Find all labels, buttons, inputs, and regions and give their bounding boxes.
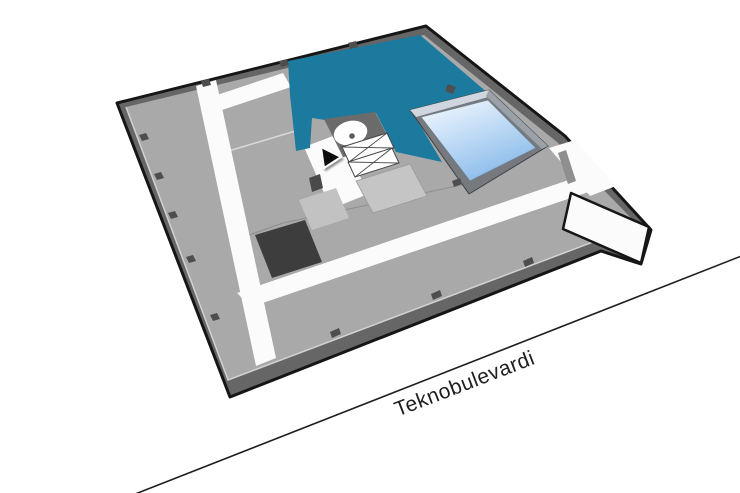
map-stage: Teknobulevardi xyxy=(0,0,740,493)
spiral-stair-center xyxy=(349,133,355,139)
map-canvas[interactable]: Teknobulevardi xyxy=(0,0,740,493)
street-label: Teknobulevardi xyxy=(391,347,538,422)
